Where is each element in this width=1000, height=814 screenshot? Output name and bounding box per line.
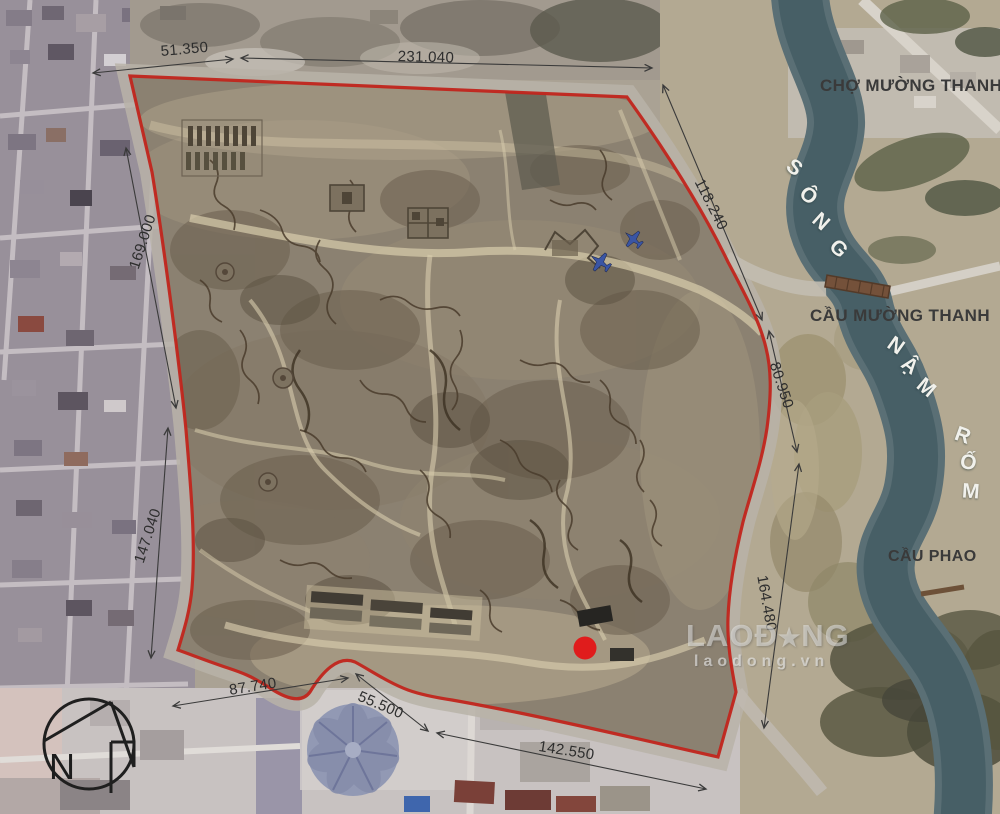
label-market: CHỢ MƯỜNG THANH [820, 76, 1000, 96]
watermark-url: laodong.vn [694, 653, 829, 671]
watermark-logo: LAOĐ★NG [686, 618, 850, 654]
north-label: N [49, 746, 75, 788]
aerial-map: 51.350 231.040 169.000 147.040 118.240 8… [0, 0, 1000, 814]
site-terrain-detail [130, 80, 762, 705]
map-artwork [0, 0, 1000, 814]
river-letter: M [961, 479, 980, 504]
dark-building [610, 648, 634, 661]
location-marker-dot [574, 637, 597, 660]
dim-label-231: 231.040 [398, 48, 455, 66]
label-bridge: CẦU MƯỜNG THANH [810, 306, 990, 326]
star-icon: ★ [778, 624, 801, 652]
label-pontoon: CẦU PHAO [888, 548, 977, 566]
